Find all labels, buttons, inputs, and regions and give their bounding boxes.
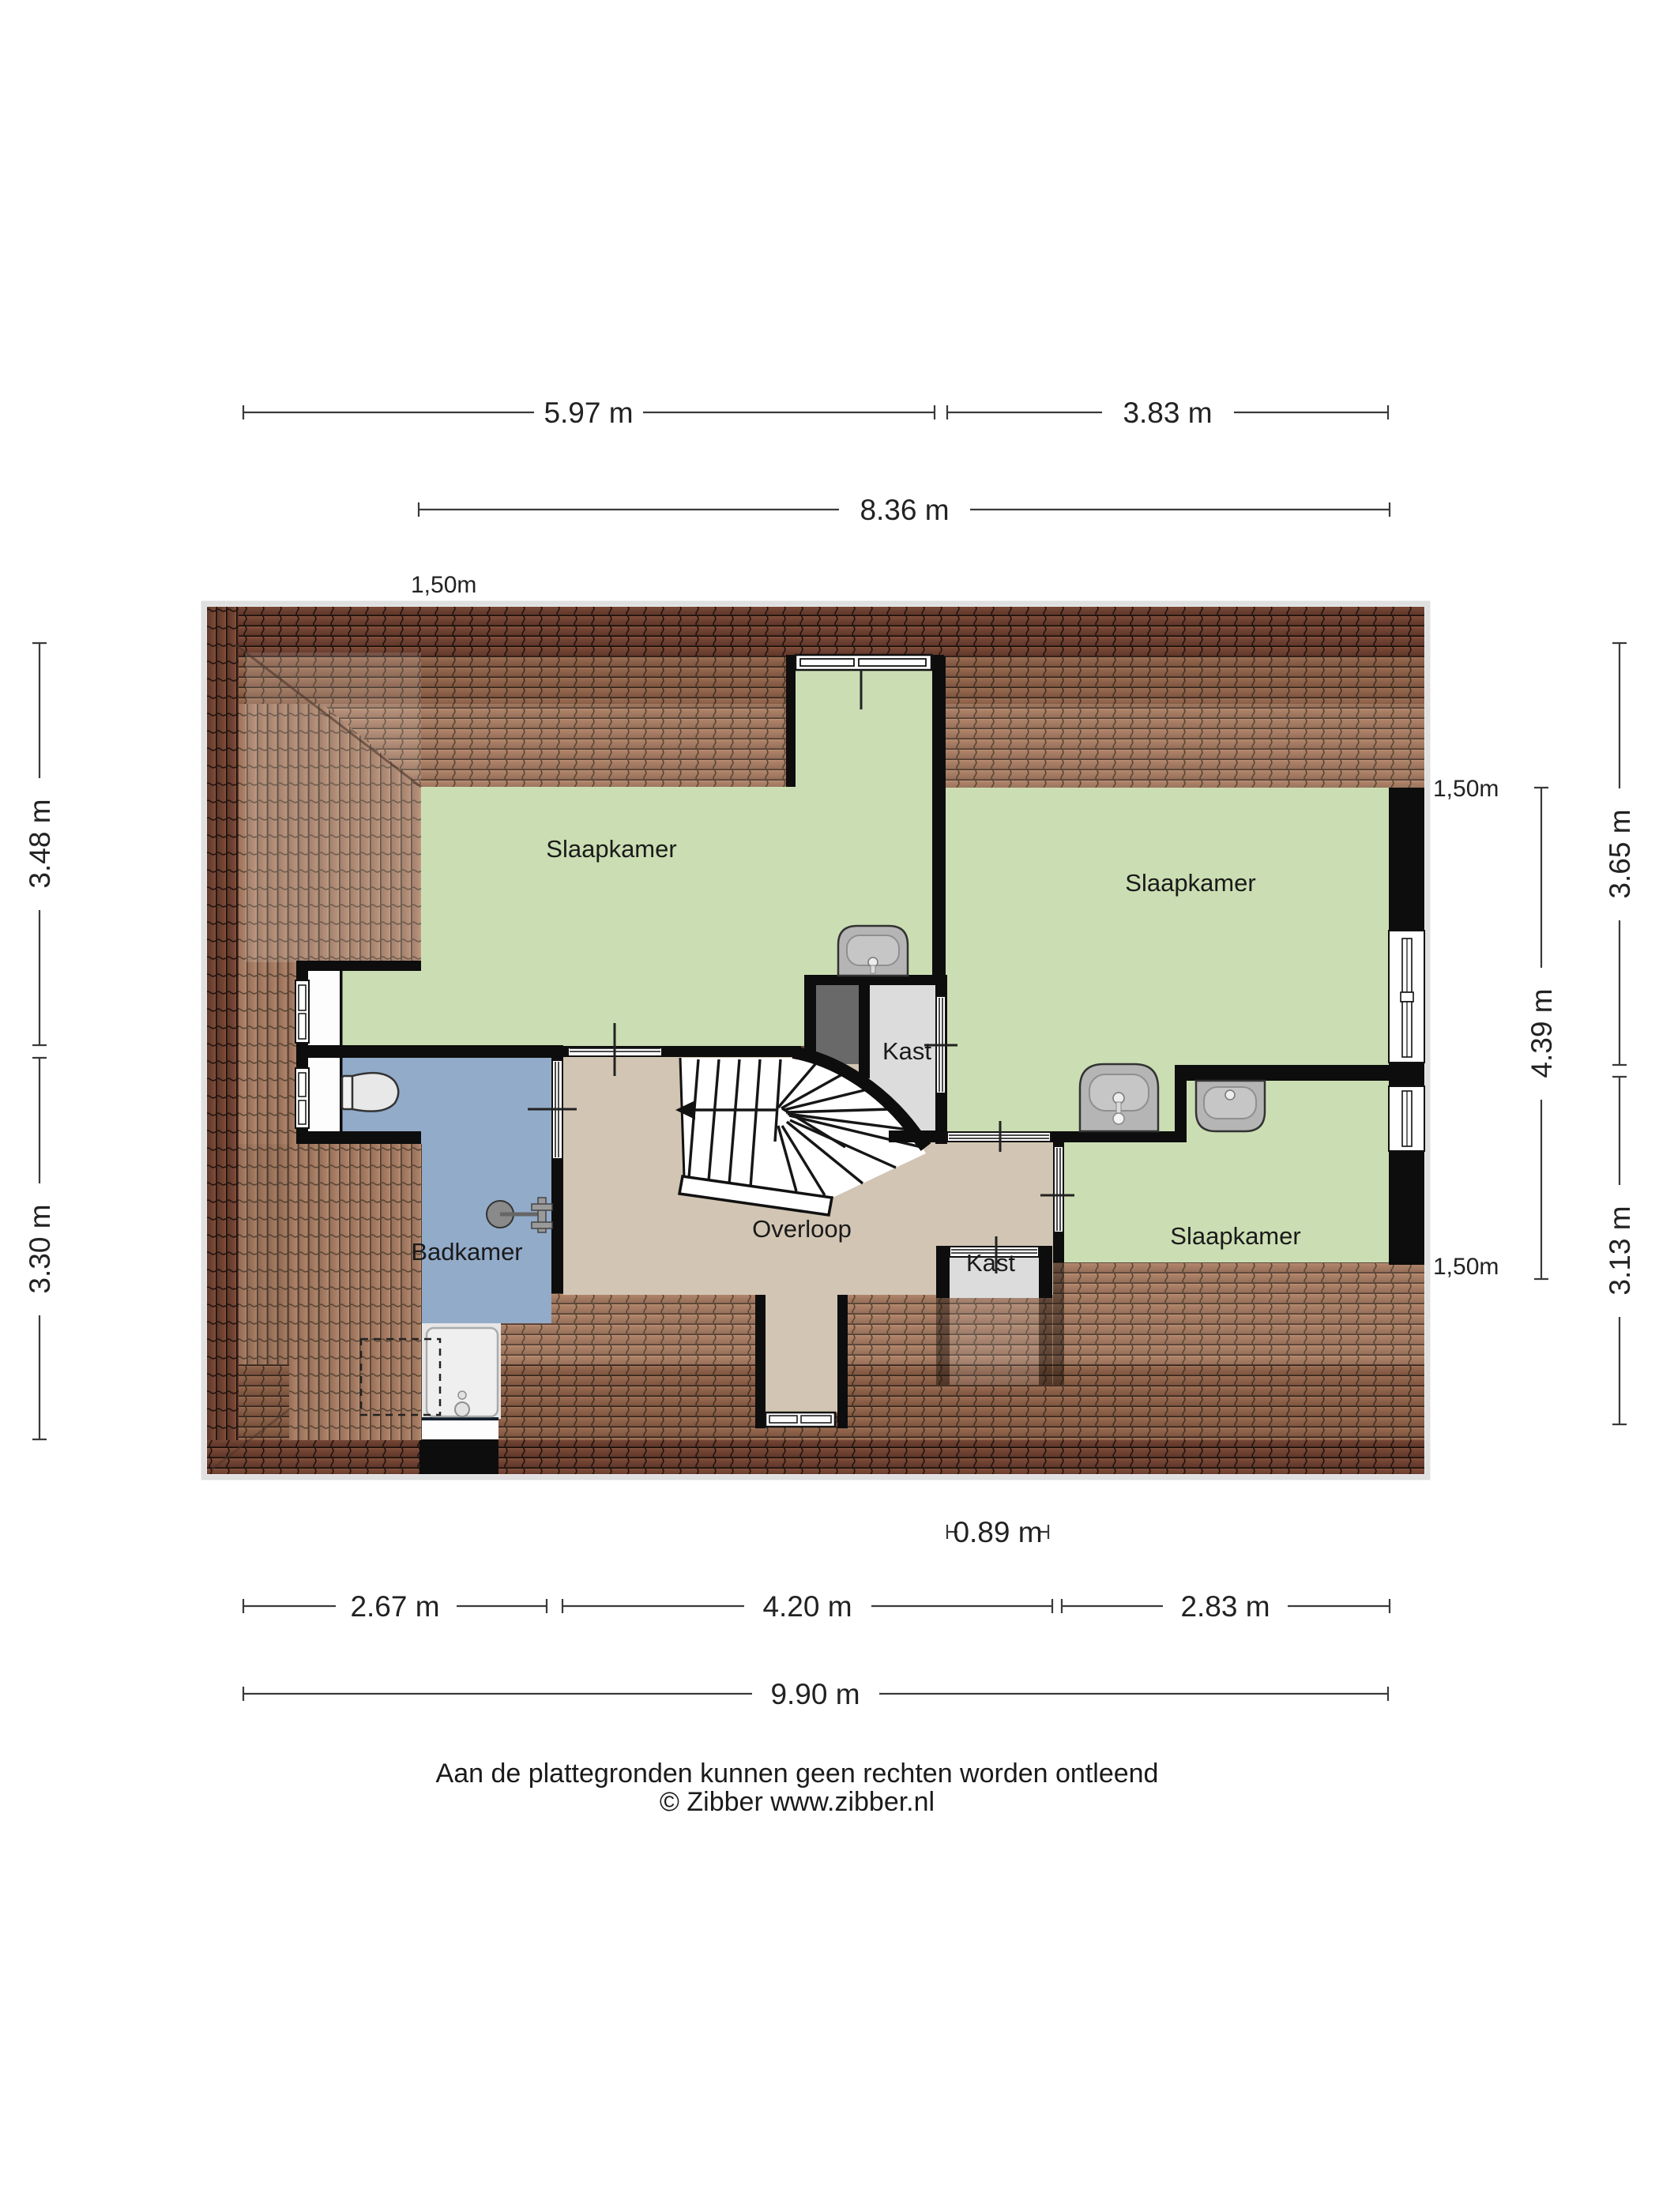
svg-text:3.13 m: 3.13 m (1604, 1206, 1636, 1295)
svg-text:Kast: Kast (966, 1249, 1015, 1277)
svg-text:© Zibber www.zibber.nl: © Zibber www.zibber.nl (660, 1787, 935, 1817)
svg-text:Kast: Kast (882, 1037, 931, 1065)
svg-text:3.30 m: 3.30 m (24, 1204, 56, 1293)
svg-text:0.89 m: 0.89 m (953, 1516, 1042, 1548)
svg-text:Slaapkamer: Slaapkamer (1170, 1222, 1300, 1250)
svg-text:9.90 m: 9.90 m (770, 1678, 860, 1710)
svg-text:4.20 m: 4.20 m (762, 1590, 852, 1623)
svg-text:1,50m: 1,50m (1433, 776, 1499, 802)
svg-text:1,50m: 1,50m (1433, 1254, 1499, 1280)
svg-text:3.48 m: 3.48 m (24, 799, 56, 888)
svg-text:Slaapkamer: Slaapkamer (546, 835, 676, 863)
svg-text:3.65 m: 3.65 m (1604, 809, 1636, 898)
svg-text:Aan de plattegronden kunnen ge: Aan de plattegronden kunnen geen rechten… (436, 1759, 1159, 1789)
svg-text:2.83 m: 2.83 m (1180, 1590, 1270, 1623)
svg-text:3.83 m: 3.83 m (1123, 397, 1212, 429)
svg-text:Slaapkamer: Slaapkamer (1125, 869, 1255, 897)
svg-text:1,50m: 1,50m (411, 572, 476, 598)
svg-text:Overloop: Overloop (752, 1215, 852, 1243)
svg-text:8.36 m: 8.36 m (860, 494, 949, 526)
svg-text:Badkamer: Badkamer (411, 1238, 522, 1266)
svg-text:2.67 m: 2.67 m (350, 1590, 439, 1623)
svg-text:4.39 m: 4.39 m (1525, 988, 1558, 1078)
svg-text:5.97 m: 5.97 m (544, 397, 633, 429)
